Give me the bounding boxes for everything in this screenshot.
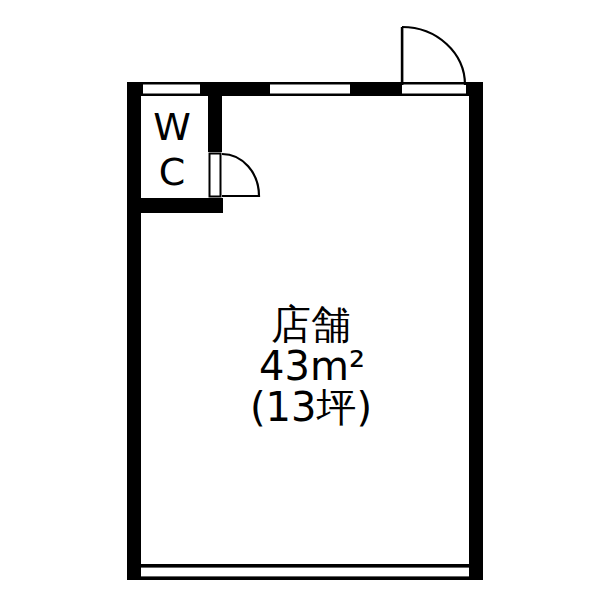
shop-room-area-tsubo: (13坪) [250,384,372,430]
entrance-door-leaf [401,27,404,85]
entrance-door-swing-arc-icon [402,27,465,85]
wc-room-label-line1: W [153,105,191,149]
outer-wall-right [469,82,483,580]
floor-plan-canvas: W C 店舗 43m² (13坪) [0,0,600,600]
shop-room-name: 店舗 [271,301,351,347]
wc-wall-bottom [138,198,223,213]
floor-plan-page: W C 店舗 43m² (13坪) [0,0,600,600]
wc-door-leaf [210,154,221,197]
outer-wall-left [127,82,141,580]
wc-room-label-line2: C [159,150,186,194]
window-top-center [270,85,350,94]
storefront-window-bottom-outer-line [141,564,469,568]
storefront-window-bottom-inner-line [141,576,469,580]
window-top-left [143,85,200,94]
wc-wall-right [208,96,222,152]
shop-room-area-sqm: 43m² [259,343,365,389]
entrance-opening [402,85,466,94]
